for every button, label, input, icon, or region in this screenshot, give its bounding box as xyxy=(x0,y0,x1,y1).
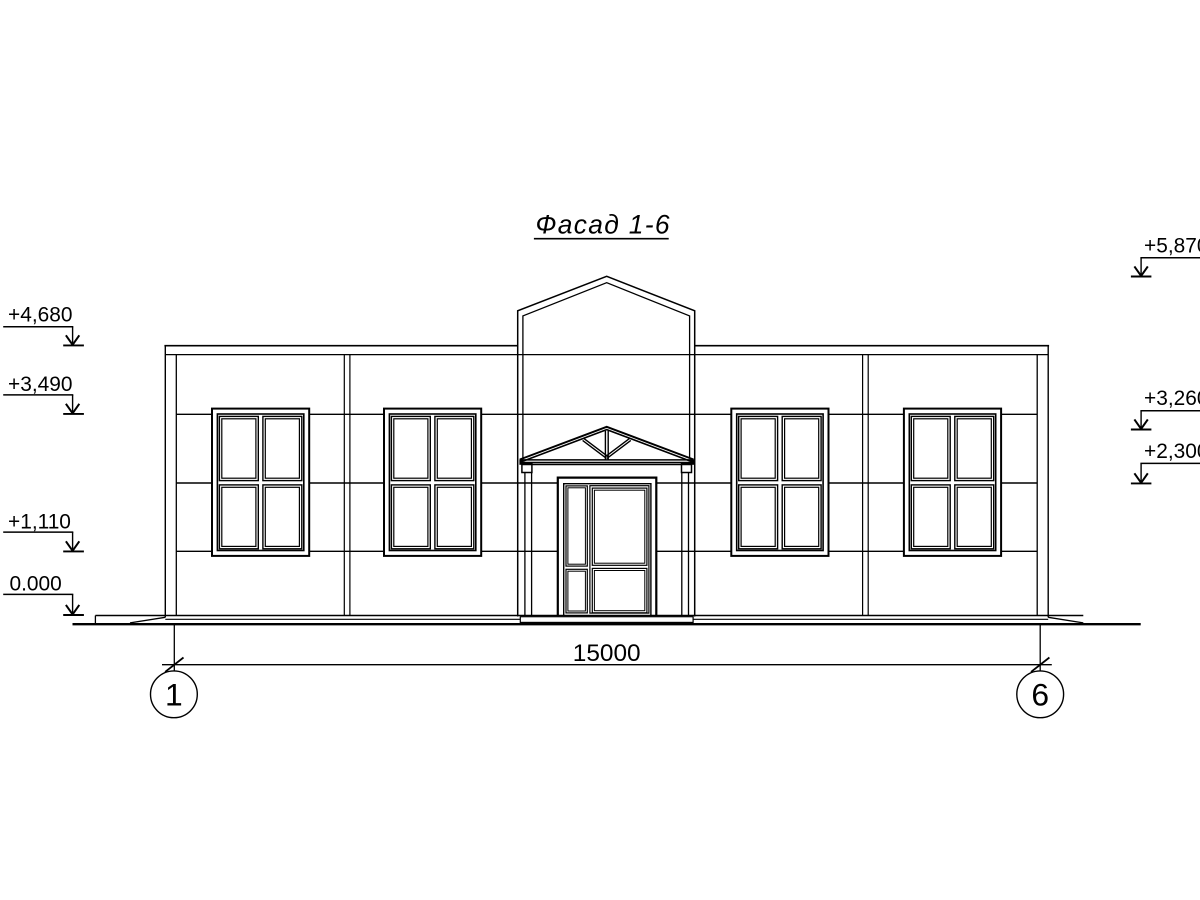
svg-text:15000: 15000 xyxy=(573,640,641,667)
svg-text:+2,300: +2,300 xyxy=(1144,440,1200,463)
svg-text:+1,110: +1,110 xyxy=(8,510,71,533)
svg-text:+5,870: +5,870 xyxy=(1144,234,1200,257)
svg-text:+4,680: +4,680 xyxy=(8,303,72,326)
svg-text:1: 1 xyxy=(165,677,183,713)
svg-text:Фасад 1-6: Фасад 1-6 xyxy=(536,210,671,240)
svg-text:6: 6 xyxy=(1031,677,1049,713)
svg-text:+3,490: +3,490 xyxy=(8,373,72,396)
svg-text:+3,260: +3,260 xyxy=(1144,387,1200,410)
svg-text:0.000: 0.000 xyxy=(10,573,62,596)
